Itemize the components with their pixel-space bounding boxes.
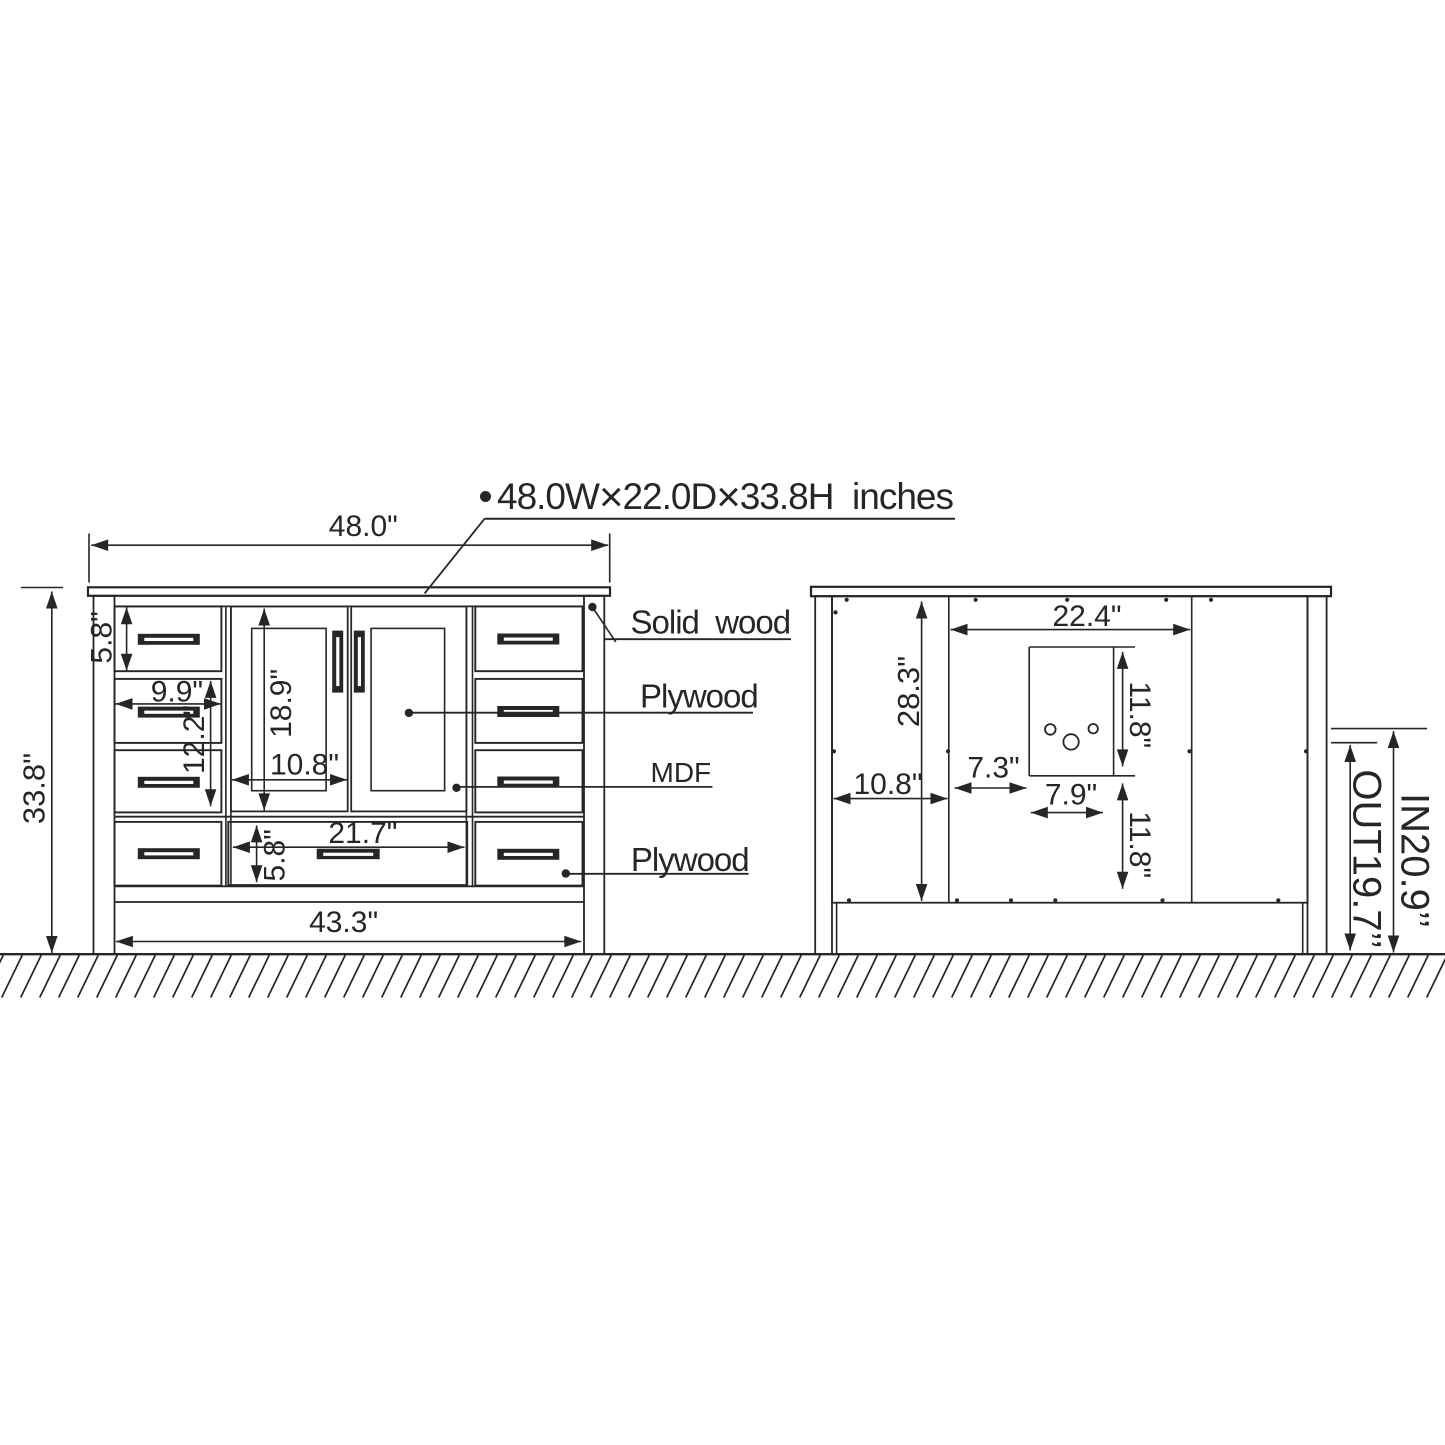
- svg-text:43.3": 43.3": [309, 906, 378, 939]
- svg-text:21.7": 21.7": [328, 817, 397, 850]
- svg-text:OUT19.7’’: OUT19.7’’: [1345, 769, 1389, 948]
- svg-text:Plywood: Plywood: [631, 841, 749, 878]
- svg-text:7.9": 7.9": [1045, 779, 1097, 812]
- svg-text:11.8": 11.8": [1123, 681, 1156, 748]
- svg-text:12.2": 12.2": [178, 705, 211, 774]
- svg-text:28.3": 28.3": [891, 656, 926, 727]
- svg-text:5.8": 5.8": [259, 829, 292, 881]
- svg-text:10.8": 10.8": [270, 749, 339, 782]
- svg-text:18.9": 18.9": [265, 669, 298, 738]
- svg-text:IN20.9’’: IN20.9’’: [1393, 793, 1437, 928]
- svg-text:11.8": 11.8": [1123, 811, 1156, 878]
- svg-text:10.8": 10.8": [853, 768, 922, 801]
- svg-text:48.0": 48.0": [329, 510, 398, 543]
- svg-text:Solid wood: Solid wood: [631, 603, 791, 640]
- svg-text:7.3": 7.3": [967, 752, 1019, 785]
- svg-text:5.8": 5.8": [86, 611, 119, 663]
- svg-text:MDF: MDF: [651, 757, 712, 788]
- svg-text:48.0W×22.0D×33.8H inches: 48.0W×22.0D×33.8H inches: [497, 473, 953, 520]
- svg-text:Plywood: Plywood: [640, 677, 758, 714]
- svg-text:33.8": 33.8": [17, 753, 52, 824]
- svg-text:22.4": 22.4": [1052, 600, 1121, 633]
